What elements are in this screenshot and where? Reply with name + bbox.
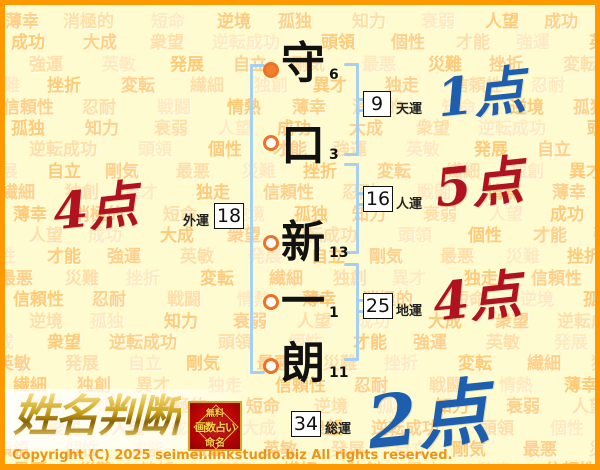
badge-line-naming: 命名 [190,434,240,449]
char-marker-4 [263,294,279,310]
name-char-3: 新 [281,221,325,265]
heaven-luck-value-box: 9 [363,91,391,117]
outer-luck-value-box: 18 [214,203,244,229]
char-marker-3 [263,235,279,251]
site-logo[interactable]: 姓名判断 [13,393,181,441]
name-char-2: 口 [281,124,325,168]
stroke-count-3: 13 [329,245,348,261]
person-luck-value-box: 16 [363,186,393,212]
heaven-luck-bracket-tick-top [344,63,359,66]
stroke-count-5: 11 [329,365,348,381]
stroke-count-2: 3 [329,147,339,163]
person-luck-label: 人運 [396,193,422,212]
name-char-4: 一 [281,280,325,324]
person-luck-bracket [356,163,359,254]
earth-luck-bracket-tick-bottom [344,358,359,361]
free-naming-badge[interactable]: 無料 画数占い 命名 [188,401,242,451]
badge-line-stroke-fortune: 画数占い [190,419,240,435]
name-char-5: 朗 [281,342,325,386]
earth-luck-bracket-tick-top [344,263,359,266]
background-word: 独走 [478,456,512,464]
heaven-luck-score: 1点 [435,65,528,126]
badge-line-free: 無料 [190,406,240,419]
outer-luck-bracket-tick-bottom [250,371,265,374]
outer-luck-label: 外運 [183,210,209,229]
char-marker-1 [263,62,279,78]
outer-luck-score: 4点 [51,179,141,238]
person-luck-bracket-tick-top [344,163,359,166]
earth-luck-score: 4点 [431,269,524,330]
name-char-1: 守 [281,42,325,86]
total-luck-label: 総運 [325,418,351,437]
background-word: 信頼性 [545,456,595,464]
person-luck-score: 5点 [433,155,526,216]
total-luck-value-box: 34 [291,411,321,437]
earth-luck-value-box: 25 [363,293,393,319]
earth-luck-label: 地運 [396,300,422,319]
total-luck-score: 2点 [364,375,493,459]
char-marker-2 [263,135,279,151]
stroke-count-4: 1 [329,305,339,321]
page-frame: 薄幸消極的短命逆境孤独知力衰弱人望成功人望成功大成衆望逆転成功頭領個性才能強運英… [0,0,600,470]
char-marker-5 [263,358,279,374]
heaven-luck-bracket-tick-bottom [344,153,359,156]
copyright-text: Copyright (C) 2025 seimei.linkstudio.biz… [12,448,452,463]
outer-luck-bracket [250,64,253,374]
stroke-count-1: 6 [329,67,339,83]
heaven-luck-label: 天運 [396,98,422,117]
